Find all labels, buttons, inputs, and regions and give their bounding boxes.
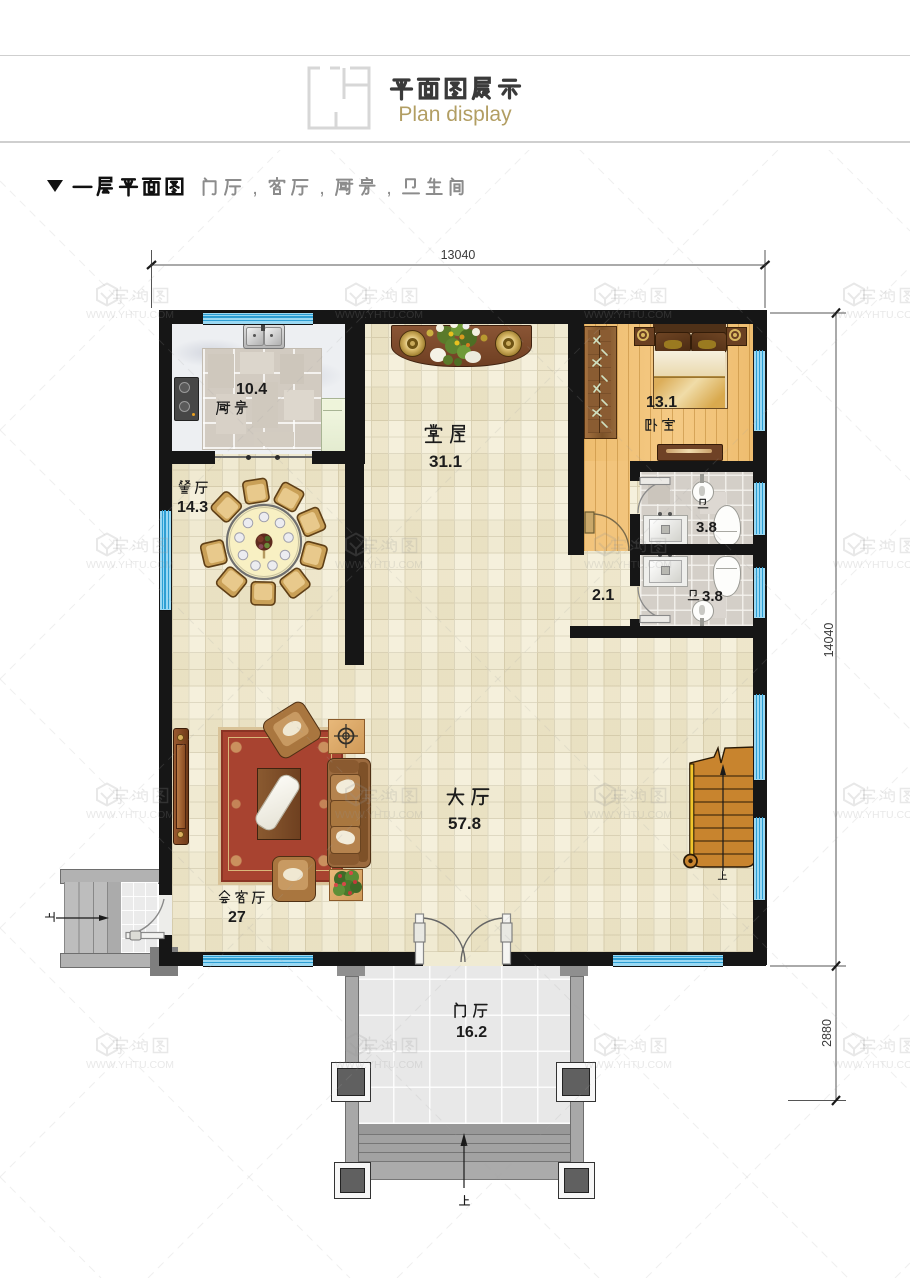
svg-text:WWW.YHTU.COM: WWW.YHTU.COM (86, 309, 174, 321)
svg-text:WWW.YHTU.COM: WWW.YHTU.COM (335, 559, 423, 571)
svg-text:WWW.YHTU.COM: WWW.YHTU.COM (584, 1059, 672, 1071)
svg-text:WWW.YHTU.COM: WWW.YHTU.COM (335, 809, 423, 821)
svg-text:WWW.YHTU.COM: WWW.YHTU.COM (335, 1059, 423, 1071)
svg-text:WWW.YHTU.COM: WWW.YHTU.COM (335, 309, 423, 321)
svg-text:WWW.YHTU.COM: WWW.YHTU.COM (86, 809, 174, 821)
svg-text:WWW.YHTU.COM: WWW.YHTU.COM (833, 559, 910, 571)
svg-text:WWW.YHTU.COM: WWW.YHTU.COM (833, 809, 910, 821)
svg-text:WWW.YHTU.COM: WWW.YHTU.COM (584, 809, 672, 821)
svg-text:WWW.YHTU.COM: WWW.YHTU.COM (584, 309, 672, 321)
svg-text:WWW.YHTU.COM: WWW.YHTU.COM (833, 309, 910, 321)
svg-text:WWW.YHTU.COM: WWW.YHTU.COM (833, 1059, 910, 1071)
svg-text:WWW.YHTU.COM: WWW.YHTU.COM (86, 559, 174, 571)
svg-text:WWW.YHTU.COM: WWW.YHTU.COM (86, 1059, 174, 1071)
svg-text:WWW.YHTU.COM: WWW.YHTU.COM (584, 559, 672, 571)
